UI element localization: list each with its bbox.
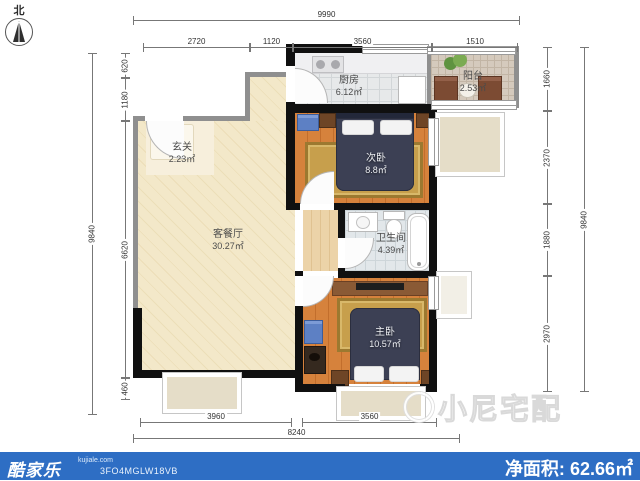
room-name: 玄关 — [150, 141, 214, 154]
room-area: 30.27㎡ — [190, 241, 266, 253]
room-label-master: 主卧 10.57㎡ — [355, 326, 415, 351]
dim-value: 8240 — [286, 428, 308, 437]
balcony-bottom-window — [431, 100, 517, 110]
master-cabinet — [304, 320, 323, 344]
dim-top-3: 3560 — [293, 47, 432, 48]
stove — [312, 56, 344, 73]
dim-left-3: 6620 — [125, 121, 126, 378]
dim-value: 620 — [121, 57, 130, 74]
dim-value: 2970 — [543, 323, 552, 345]
kujiale-logo: 酷家乐 — [7, 456, 61, 481]
room-area: 10.57㎡ — [355, 339, 415, 351]
room-area: 6.12㎡ — [318, 87, 380, 99]
room-label-balcony: 阳台 2.53㎡ — [443, 70, 503, 95]
living-room-floor — [250, 77, 290, 121]
dim-value: 6620 — [121, 239, 130, 261]
dim-left-4: 460 — [125, 378, 126, 400]
dim-value: 9840 — [88, 223, 97, 245]
door-opening — [295, 276, 303, 306]
wall-segment — [427, 53, 431, 104]
room-name: 主卧 — [355, 326, 415, 339]
net-area-value: 62.66㎡ — [570, 459, 633, 479]
bay-window — [436, 113, 504, 176]
dim-right-4: 2970 — [547, 276, 548, 392]
room-name: 次卧 — [348, 152, 404, 165]
room-name: 客餐厅 — [190, 228, 266, 241]
tv — [356, 283, 404, 290]
room-area: 2.23㎡ — [150, 154, 214, 166]
dim-top-4: 1510 — [432, 47, 518, 48]
kujiale-site-text: kujiale.com — [78, 457, 113, 464]
wall-segment — [245, 72, 250, 121]
room-name: 厨房 — [318, 74, 380, 87]
plan-code: 3FO4MGLW18VB — [100, 466, 178, 476]
dim-value: 1510 — [464, 37, 486, 46]
dim-bottom-1: 3960 — [140, 422, 292, 423]
watermark-text: 小尼宅配 — [438, 386, 562, 428]
dim-right-1: 1660 — [547, 47, 548, 111]
master-side-window — [437, 272, 471, 318]
room-label-entry: 玄关 2.23㎡ — [150, 141, 214, 166]
room-label-bathroom: 卫生间 4.39㎡ — [362, 232, 420, 257]
dim-value: 1660 — [543, 68, 552, 90]
compass-needle-line — [19, 22, 20, 42]
watermark-logo-icon — [404, 392, 434, 422]
wall-segment — [133, 308, 142, 378]
dim-left-1: 620 — [125, 53, 126, 78]
wall-segment — [133, 116, 138, 312]
compass: 北 — [4, 2, 34, 46]
room-label-bedroom2: 次卧 8.8㎡ — [348, 152, 404, 177]
room-area: 4.39㎡ — [362, 245, 420, 257]
room-area: 8.8㎡ — [348, 165, 404, 177]
watermark: 小尼宅配 — [404, 386, 562, 428]
dim-left-overall: 9840 — [92, 53, 93, 415]
master-side-window-pane — [428, 276, 439, 310]
wall-segment — [286, 104, 437, 113]
net-area-label: 净面积: — [505, 459, 565, 479]
dim-value: 3560 — [352, 37, 374, 46]
wall-segment — [514, 46, 519, 108]
room-label-kitchen: 厨房 6.12㎡ — [318, 74, 380, 99]
dim-top-overall: 9990 — [133, 20, 520, 21]
compass-north-label: 北 — [4, 2, 34, 18]
door-opening — [338, 238, 345, 268]
dim-value: 1880 — [543, 229, 552, 251]
dim-value: 3960 — [205, 412, 227, 421]
footer-bar: 酷家乐 kujiale.com 3FO4MGLW18VB 净面积: 62.66㎡ — [0, 452, 640, 480]
wardrobe — [304, 346, 326, 374]
dim-value: 9990 — [316, 10, 338, 19]
dim-bottom-overall: 8240 — [133, 438, 460, 439]
wall-segment — [286, 44, 362, 53]
dim-right-3: 1880 — [547, 204, 548, 276]
room-area: 2.53㎡ — [443, 83, 503, 95]
net-area: 净面积: 62.66㎡ — [505, 455, 633, 481]
dim-value: 460 — [121, 380, 130, 397]
room-label-living: 客餐厅 30.27㎡ — [190, 228, 266, 253]
dim-top-1: 2720 — [143, 47, 250, 48]
room-name: 卫生间 — [362, 232, 420, 245]
door-opening — [300, 203, 334, 210]
fridge — [398, 76, 426, 104]
door-opening — [286, 66, 295, 102]
dim-value: 2370 — [543, 147, 552, 169]
dim-value: 9840 — [580, 209, 589, 231]
pillow — [342, 120, 374, 135]
sink-vanity — [348, 212, 378, 232]
wall-segment — [286, 104, 295, 204]
compass-icon — [5, 18, 33, 46]
dim-left-2: 1180 — [125, 78, 126, 121]
pillow — [389, 366, 419, 382]
dim-value: 2720 — [186, 37, 208, 46]
pillow — [380, 120, 412, 135]
room-name: 阳台 — [443, 70, 503, 83]
dim-value: 1180 — [121, 89, 130, 110]
pillow — [354, 366, 384, 382]
bedroom2-dresser — [297, 114, 319, 131]
wall-segment — [338, 271, 437, 278]
dim-value: 1120 — [261, 37, 282, 46]
dim-right-overall: 9840 — [584, 47, 585, 392]
bedroom2-side-window — [428, 118, 439, 166]
nightstand — [319, 113, 336, 128]
dim-right-2: 2370 — [547, 111, 548, 204]
living-bay-window — [163, 373, 241, 413]
hallway-floor — [303, 210, 338, 271]
dim-top-2: 1120 — [250, 47, 293, 48]
dim-value: 3560 — [359, 412, 381, 421]
